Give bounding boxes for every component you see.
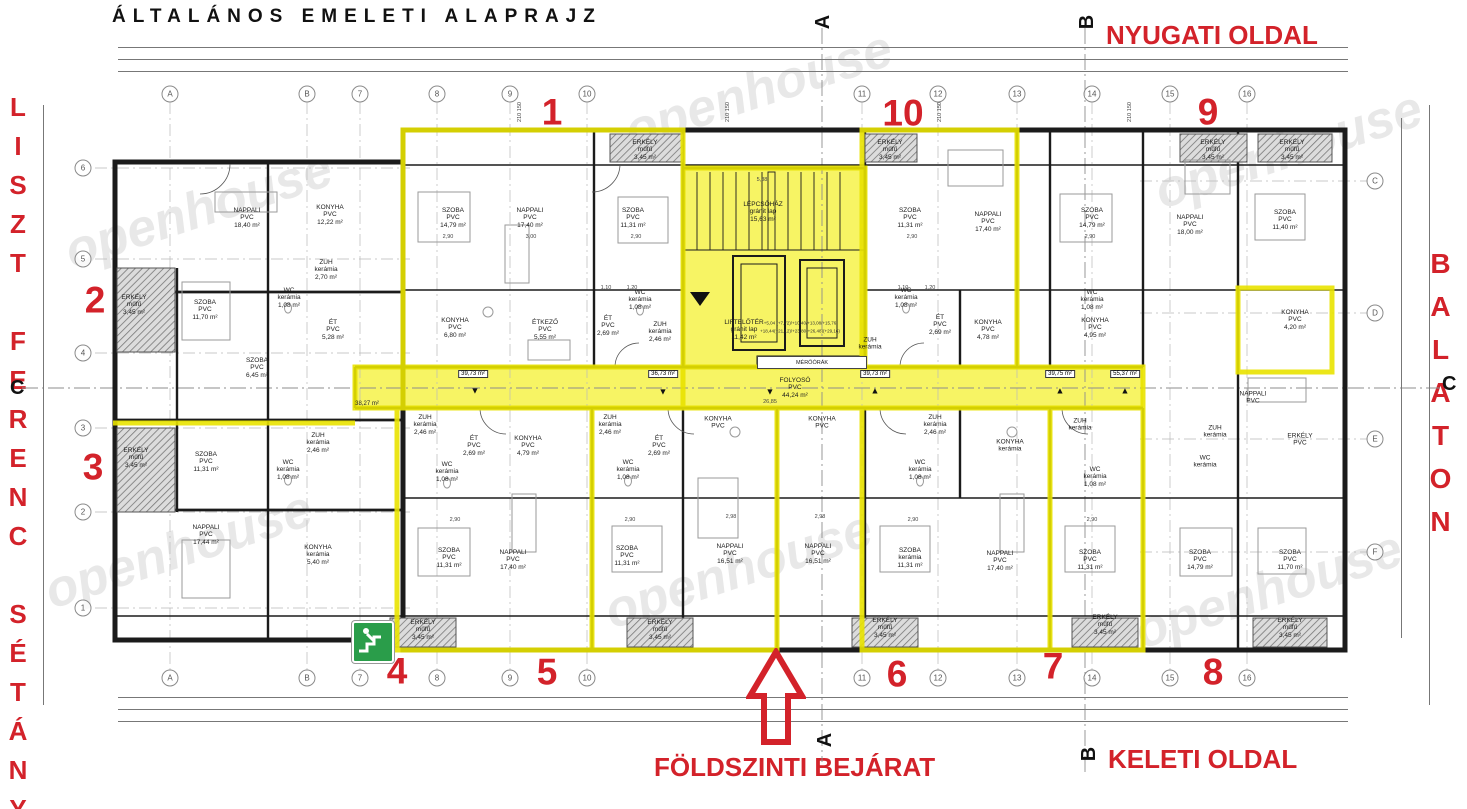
interior-dimension: 1,20 [925, 285, 936, 291]
room-label: SZOBAPVC11,31 m² [436, 547, 461, 569]
room-label: WCkerámia1,08 m² [435, 461, 458, 483]
corridor-left-area: 38,27 m² [355, 401, 379, 407]
grid-axis-bubble: 10 [579, 670, 596, 687]
dimension-row-top-1 [118, 36, 1348, 48]
grid-axis-bubble: 1 [75, 600, 92, 617]
interior-dimension: 2,90 [907, 234, 918, 240]
room-label: SZOBAPVC11,31 m² [193, 451, 218, 473]
room-label: ÉTPVC2,69 m² [463, 435, 485, 457]
room-label: NAPPALIPVC17,40 m² [500, 549, 527, 571]
corridor-door-arrow: ▼ [766, 388, 775, 397]
room-label: ERKÉLYműfű3,45 m² [632, 139, 657, 161]
room-label: SZOBAPVC11,31 m² [620, 207, 645, 229]
room-label: SZOBAPVC11,31 m² [614, 545, 639, 567]
interior-dimension: 2,90 [450, 517, 461, 523]
room-label: ERKÉLYműfű3,45 m² [872, 617, 897, 639]
grid-axis-bubble: 12 [930, 86, 947, 103]
interior-dimension: 1,20 [627, 285, 638, 291]
interior-dimension: 2,90 [1085, 234, 1096, 240]
grid-axis-bubble: F [1367, 544, 1384, 561]
interior-dimension: 1,10 [898, 285, 909, 291]
corridor-door-arrow: ▼ [471, 387, 480, 396]
grid-axis-bubble: 12 [930, 670, 947, 687]
room-label: NAPPALIPVC16,51 m² [717, 543, 744, 565]
room-label: SZOBAPVC6,45 m² [246, 357, 268, 379]
room-label: SZOBAPVC11,70 m² [192, 299, 217, 321]
grid-axis-bubble: 6 [75, 160, 92, 177]
grid-axis-bubble: 15 [1162, 86, 1179, 103]
room-label: ÉTPVC2,69 m² [648, 435, 670, 457]
grid-axis-bubble: E [1367, 431, 1384, 448]
room-label: SZOBAPVC11,31 m² [897, 207, 922, 229]
grid-axis-bubble: 14 [1084, 86, 1101, 103]
room-label: FOLYOSÓPVC44,24 m² [780, 377, 811, 399]
grid-axis-bubble: 13 [1009, 86, 1026, 103]
room-label: SZOBAPVC11,40 m² [1272, 209, 1297, 231]
room-label: SZOBAPVC14,79 m² [440, 207, 466, 229]
grid-axis-bubble: 7 [352, 86, 369, 103]
corridor-area-box: 39,73 m² [458, 370, 488, 378]
room-label: LÉPCSŐHÁZgránit lap15,63 m² [743, 201, 782, 223]
room-label: ZUHkerámia [858, 337, 881, 352]
floorplan-page: openhouseopenhouseopenhouseopenhouseopen… [0, 0, 1467, 809]
grid-axis-bubble: 2 [75, 504, 92, 521]
room-label: NAPPALIPVC17,40 m² [517, 207, 544, 229]
corridor-area-box: 55,37 m² [1110, 370, 1140, 378]
grid-axis-bubble: 3 [75, 420, 92, 437]
room-label: KONYHAPVC4,20 m² [1281, 309, 1308, 331]
dimension-column-right-outer [1418, 105, 1430, 705]
room-label: SZOBAPVC11,70 m² [1277, 549, 1302, 571]
corridor-door-arrow: ▲ [1056, 387, 1065, 396]
room-label: ZUHkerámia2,46 m² [306, 432, 329, 454]
section-marker: B [1079, 747, 1099, 761]
emergency-exit-icon [352, 621, 394, 663]
grid-axis-bubble: 15 [1162, 670, 1179, 687]
dimension-row-bottom-2 [118, 698, 1348, 710]
interior-dimension: 3,00 [526, 234, 537, 240]
interior-dimension: 5,88 [757, 177, 768, 183]
room-label: NAPPALIPVC [1240, 391, 1267, 406]
room-label: WCkerámia1,08 m² [908, 459, 931, 481]
room-label: WCkerámia1,08 m² [277, 287, 300, 309]
grid-axis-bubble: A [162, 86, 179, 103]
room-label: ÉTPVC5,28 m² [322, 319, 344, 341]
grid-axis-bubble: A [162, 670, 179, 687]
section-marker: C [10, 378, 24, 398]
room-label: KONYHAPVC4,95 m² [1081, 317, 1108, 339]
room-label: SZOBAPVC14,79 m² [1187, 549, 1213, 571]
section-marker: C [1442, 374, 1456, 394]
grid-axis-bubble: 16 [1239, 670, 1256, 687]
room-label: ERKÉLYműfű3,45 m² [1092, 614, 1117, 636]
room-label: WCkerámia [1193, 455, 1216, 470]
interior-dimension: 210 150 [725, 102, 731, 122]
grid-axis-bubble: 13 [1009, 670, 1026, 687]
meters-room-label: MÉRŐÓRÁK [757, 356, 867, 369]
interior-dimension: 2,98 [726, 514, 737, 520]
room-label: ZUHkerámia2,46 m² [598, 414, 621, 436]
interior-dimension: 1,10 [601, 285, 612, 291]
grid-axis-bubble: B [299, 670, 316, 687]
interior-dimension: 2,90 [443, 234, 454, 240]
interior-dimension: 210 150 [937, 102, 943, 122]
grid-axis-bubble: 9 [502, 86, 519, 103]
room-label: WCkerámia1,08 m² [1083, 466, 1106, 488]
grid-axis-bubble: 4 [75, 345, 92, 362]
grid-axis-bubble: C [1367, 173, 1384, 190]
corridor-door-arrow: ▲ [1121, 387, 1130, 396]
room-label: ERKÉLYműfű3,45 m² [877, 139, 902, 161]
room-label: NAPPALIPVC17,40 m² [975, 211, 1002, 233]
room-label: ERKÉLYműfű3,45 m² [647, 619, 672, 641]
room-label: SZOBAPVC14,79 m² [1079, 207, 1105, 229]
room-label: ERKÉLYműfű3,45 m² [1279, 139, 1304, 161]
room-label: WCkerámia1,08 m² [628, 289, 651, 311]
room-label: WCkerámia1,08 m² [276, 459, 299, 481]
interior-dimension: 2,90 [631, 234, 642, 240]
grid-axis-bubble: 11 [854, 670, 871, 687]
room-label: NAPPALIPVC18,00 m² [1177, 214, 1204, 236]
room-label: KONYHAPVC4,79 m² [514, 435, 541, 457]
room-label: KONYHAPVC4,78 m² [974, 319, 1001, 341]
room-label: NAPPALIPVC17,40 m² [987, 550, 1014, 572]
dimension-row-bottom-1 [118, 686, 1348, 698]
room-label: SZOBAkerámia11,31 m² [897, 547, 922, 569]
corridor-area-box: 39,75 m² [1045, 370, 1075, 378]
room-label: ERKÉLYműfű3,45 m² [121, 294, 146, 316]
room-label: ÉTPVC2,69 m² [929, 314, 951, 336]
interior-dimension: 2,90 [908, 517, 919, 523]
room-label: NAPPALIPVC16,51 m² [805, 543, 832, 565]
grid-axis-bubble: 5 [75, 251, 92, 268]
room-label: ÉTKEZŐPVC5,55 m² [532, 319, 558, 341]
room-label: ZUHkerámia [1203, 425, 1226, 440]
room-label: ERKÉLYPVC [1287, 433, 1312, 448]
room-label: NAPPALIPVC18,40 m² [234, 207, 261, 229]
section-marker: B [1077, 15, 1097, 29]
room-label: KONYHAkerámia5,40 m² [304, 544, 331, 566]
grid-axis-bubble: 10 [579, 86, 596, 103]
interior-dimension: 2,98 [815, 514, 826, 520]
room-label: KONYHAPVC [704, 416, 731, 431]
room-label: WCkerámia1,08 m² [616, 459, 639, 481]
room-label: ERKÉLYműfű3,45 m² [1200, 139, 1225, 161]
dimension-row-top-2 [118, 48, 1348, 60]
grid-axis-bubble: B [299, 86, 316, 103]
corridor-area-box: 36,73 m² [648, 370, 678, 378]
room-label: LIFTELŐTÉRgránit lap11,42 m² [724, 319, 763, 341]
interior-dimension: 2,90 [625, 517, 636, 523]
grid-axis-bubble: 16 [1239, 86, 1256, 103]
room-label: KONYHAPVC [808, 416, 835, 431]
level-heights-line2: +18,44(+21,12)/+23,80(+26,48)(+29,16) [760, 329, 840, 334]
room-label: ERKÉLYműfű3,45 m² [1277, 617, 1302, 639]
corridor-door-arrow: ▼ [659, 388, 668, 397]
section-marker: A [815, 733, 835, 747]
dimension-row-bottom-3 [118, 710, 1348, 722]
level-heights-line1: +5,04 (+7,72)/+10,40/+13,08/+15,76 [764, 321, 836, 326]
grid-axis-bubble: 8 [429, 670, 446, 687]
grid-axis-bubble: 7 [352, 670, 369, 687]
interior-dimension: 210 150 [517, 102, 523, 122]
room-label: WCkerámia1,08 m² [1080, 289, 1103, 311]
entrance-arrow [746, 648, 806, 751]
grid-axis-bubble: 9 [502, 670, 519, 687]
room-label: ZUHkerámia2,46 m² [413, 414, 436, 436]
room-label: KONYHAPVC12,22 m² [316, 204, 343, 226]
section-marker: A [813, 15, 833, 29]
grid-axis-bubble: 14 [1084, 670, 1101, 687]
room-label: SZOBAPVC11,31 m² [1077, 549, 1102, 571]
room-label: ZUHkerámia2,46 m² [923, 414, 946, 436]
room-label: ERKÉLYműfű3,45 m² [123, 447, 148, 469]
interior-dimension: 2,90 [1087, 517, 1098, 523]
dimension-column-right-inner [1390, 118, 1402, 638]
corridor-area-box: 39,73 m² [860, 370, 890, 378]
room-label: ZUHkerámia2,46 m² [648, 321, 671, 343]
interior-dimension: 210 150 [1127, 102, 1133, 122]
interior-dimension: 26,85 [763, 399, 777, 405]
grid-axis-bubble: 11 [854, 86, 871, 103]
grid-axis-bubble: 8 [429, 86, 446, 103]
grid-axis-bubble: D [1367, 305, 1384, 322]
room-label: KONYHAkerámia [996, 439, 1023, 454]
dimension-row-top-3 [118, 60, 1348, 72]
corridor-door-arrow: ▲ [871, 387, 880, 396]
room-label: ZUHkerámia [1068, 418, 1091, 433]
room-label: ÉTPVC2,69 m² [597, 315, 619, 337]
room-label: NAPPALIPVC17,44 m² [193, 524, 220, 546]
room-label: ZUHkerámia2,70 m² [314, 259, 337, 281]
dimension-column-left [32, 105, 44, 705]
room-label: KONYHAPVC6,80 m² [441, 317, 468, 339]
room-label: ERKÉLYműfű3,45 m² [410, 619, 435, 641]
